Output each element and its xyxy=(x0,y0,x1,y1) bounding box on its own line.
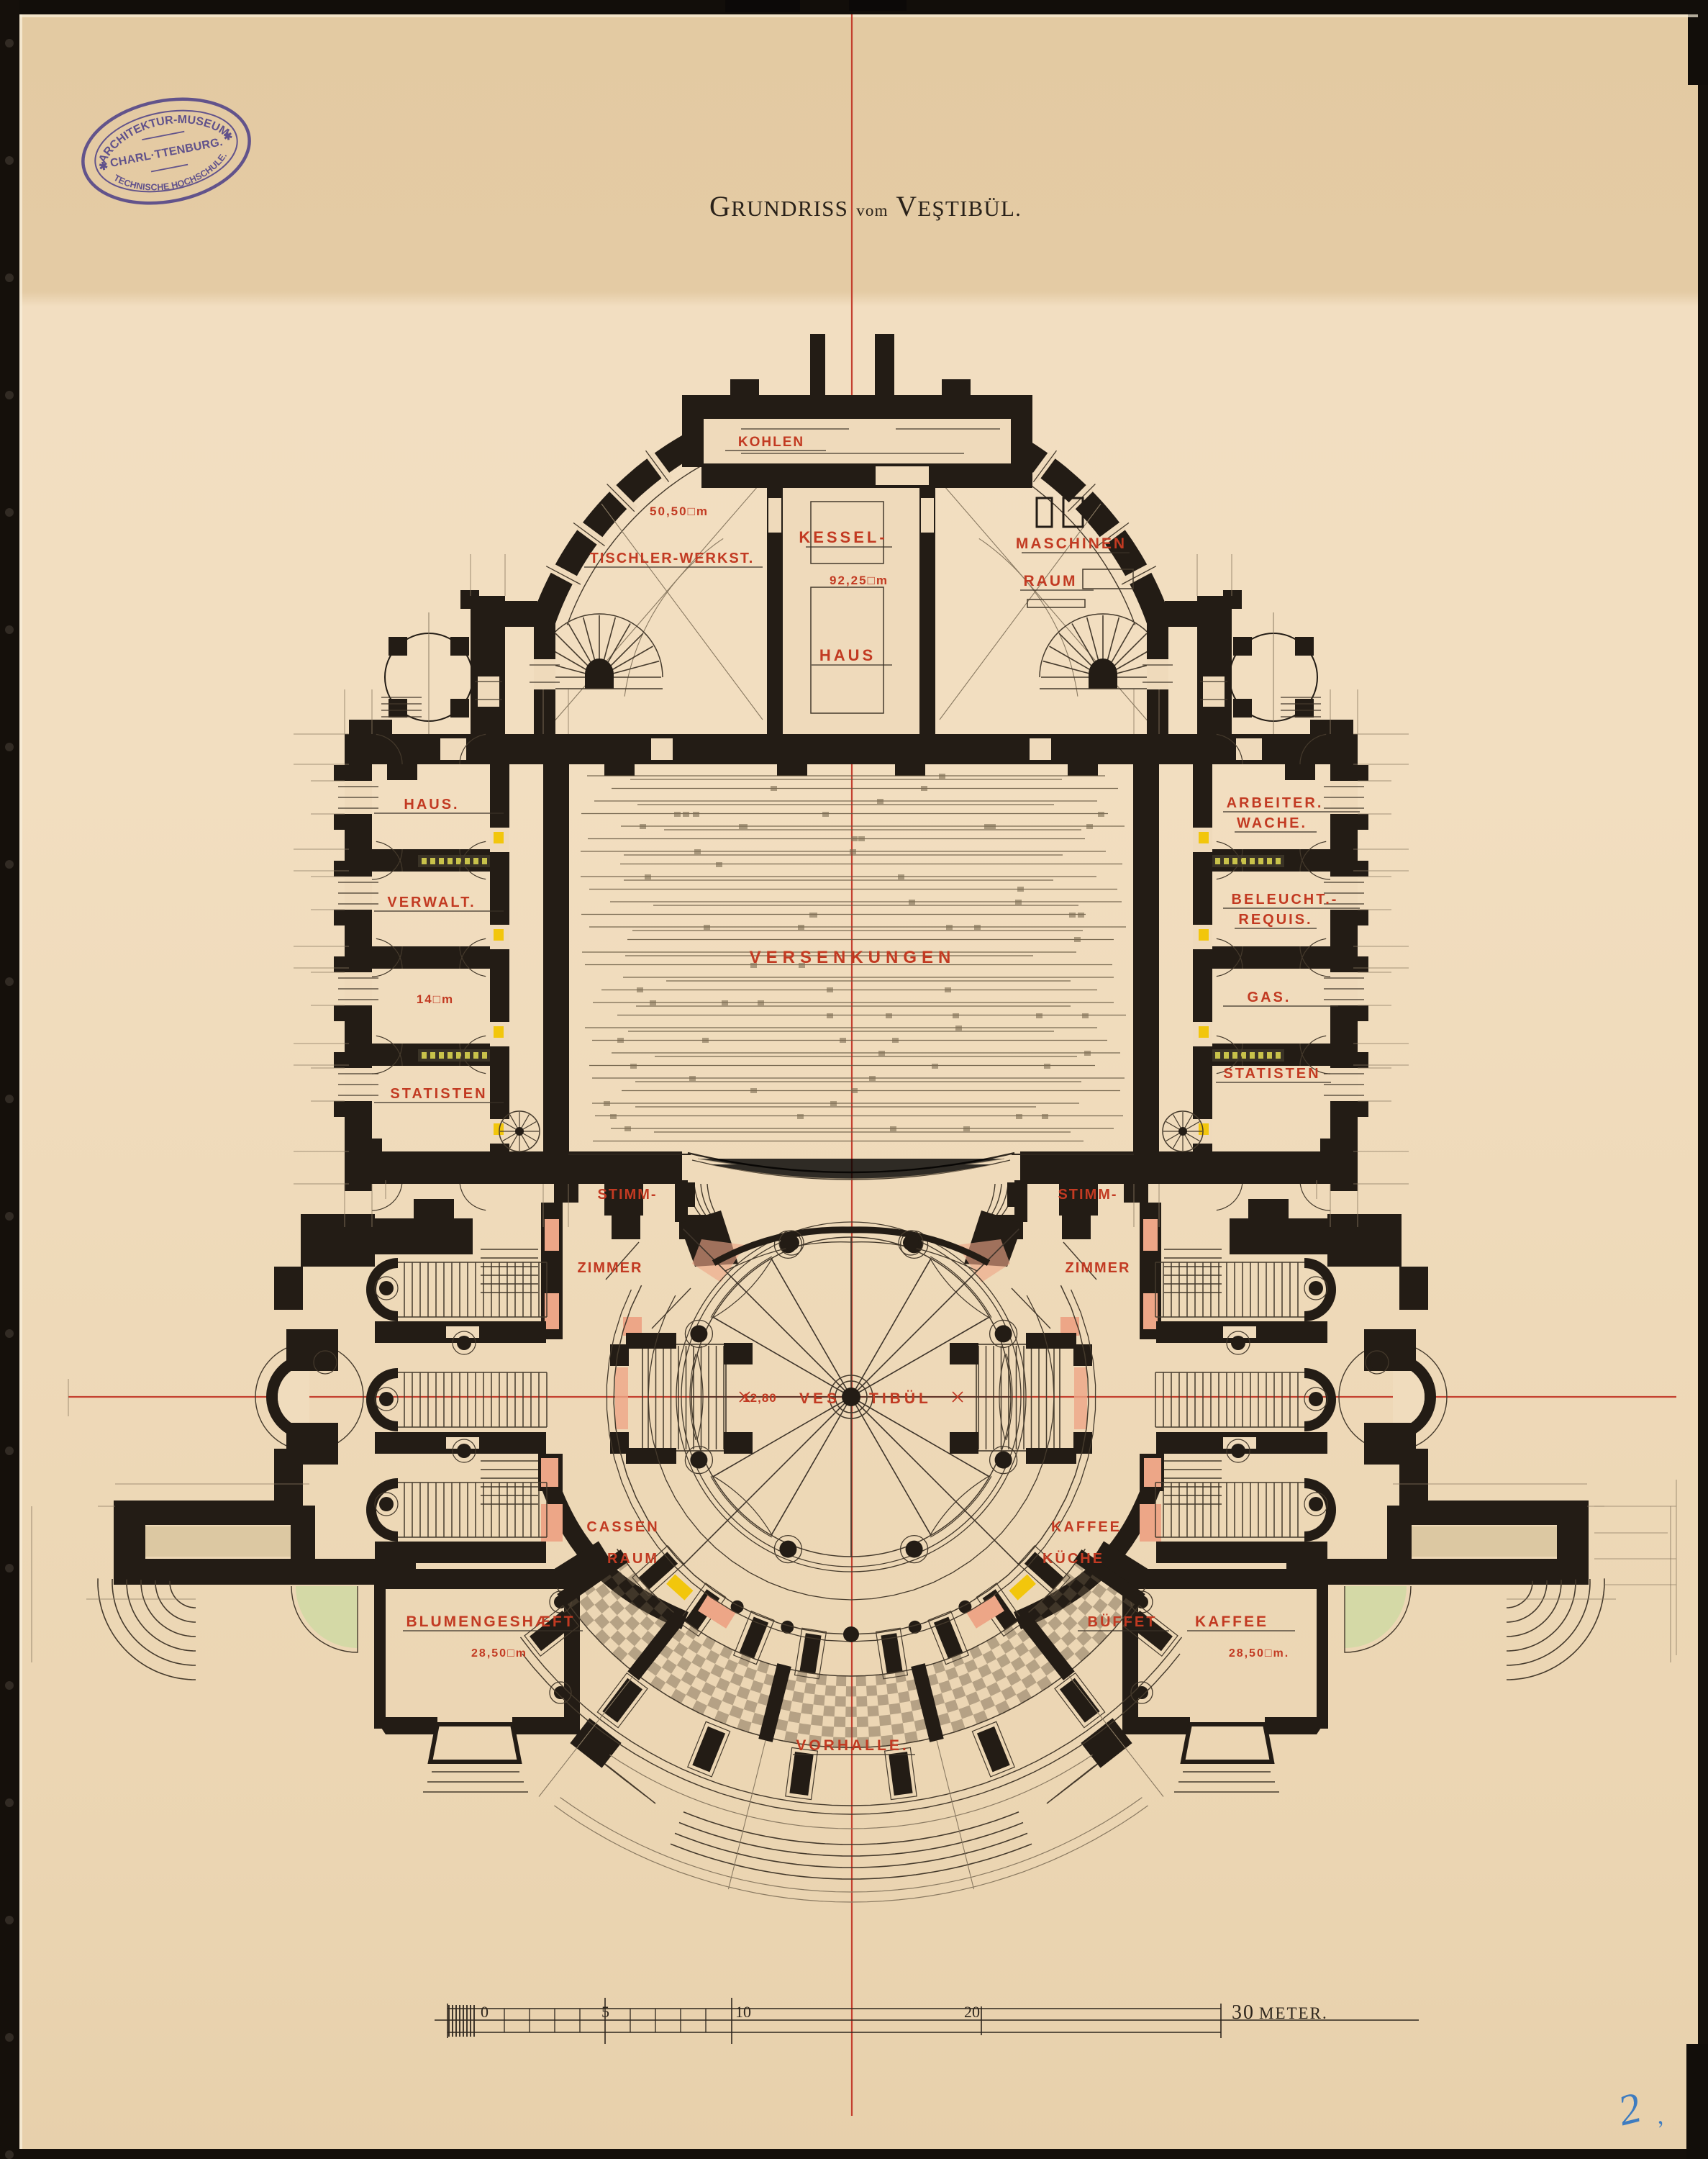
svg-text:TISCHLER-WERKST.: TISCHLER-WERKST. xyxy=(590,551,755,566)
svg-text:REQUIS.: REQUIS. xyxy=(1238,912,1312,928)
svg-text:BLUMENGESHÆFT: BLUMENGESHÆFT xyxy=(406,1613,576,1630)
svg-text:VERSENKUNGEN: VERSENKUNGEN xyxy=(750,948,956,967)
svg-text:50,50□m: 50,50□m xyxy=(650,504,709,518)
svg-text:GAS.: GAS. xyxy=(1248,990,1291,1005)
svg-text:10: 10 xyxy=(735,2003,751,2021)
svg-text:HAUS: HAUS xyxy=(819,646,876,664)
svg-text:STATISTEN: STATISTEN xyxy=(390,1086,487,1102)
svg-text:VERWALT.: VERWALT. xyxy=(387,895,476,910)
svg-text:RAUM: RAUM xyxy=(1024,573,1078,589)
svg-text:14□m: 14□m xyxy=(417,992,454,1006)
svg-text:20: 20 xyxy=(964,2003,980,2021)
svg-text:KESSEL-: KESSEL- xyxy=(799,528,887,546)
svg-text:5: 5 xyxy=(601,2003,609,2021)
svg-text:CASSEN: CASSEN xyxy=(586,1519,659,1535)
svg-text:KÜCHE: KÜCHE xyxy=(1042,1550,1104,1567)
svg-text:ZIMMER: ZIMMER xyxy=(578,1260,643,1276)
svg-text:KOHLEN: KOHLEN xyxy=(738,435,804,450)
svg-text:MASCHINEN: MASCHINEN xyxy=(1016,535,1127,552)
svg-text:STATISTEN: STATISTEN xyxy=(1223,1066,1320,1082)
svg-text:HAUS.: HAUS. xyxy=(404,797,459,813)
svg-text:VORHALLE.: VORHALLE. xyxy=(796,1737,909,1754)
svg-text:STIMM-: STIMM- xyxy=(1058,1187,1117,1203)
svg-text:30METER.: 30METER. xyxy=(1232,2001,1328,2024)
svg-text:28,50□m.: 28,50□m. xyxy=(1229,1647,1289,1660)
svg-text:0: 0 xyxy=(481,2003,489,2021)
svg-text:28,50□m: 28,50□m xyxy=(471,1647,527,1660)
svg-text:TIBÜL: TIBÜL xyxy=(869,1390,932,1407)
svg-text:RAUM: RAUM xyxy=(607,1551,659,1567)
svg-text:ZIMMER: ZIMMER xyxy=(1066,1260,1131,1276)
svg-text:VES: VES xyxy=(799,1390,840,1407)
svg-text:BÜFFET: BÜFFET xyxy=(1088,1613,1158,1630)
svg-text:ARBEITER.: ARBEITER. xyxy=(1227,795,1324,811)
svg-text:STIMM-: STIMM- xyxy=(597,1187,657,1203)
svg-text:KAFFEE: KAFFEE xyxy=(1051,1519,1122,1535)
svg-text:KAFFEE: KAFFEE xyxy=(1195,1613,1268,1630)
svg-text:92,25□m: 92,25□m xyxy=(830,574,889,587)
svg-text:WACHE.: WACHE. xyxy=(1237,815,1307,831)
svg-text:BELEUCHT.-: BELEUCHT.- xyxy=(1232,892,1339,907)
